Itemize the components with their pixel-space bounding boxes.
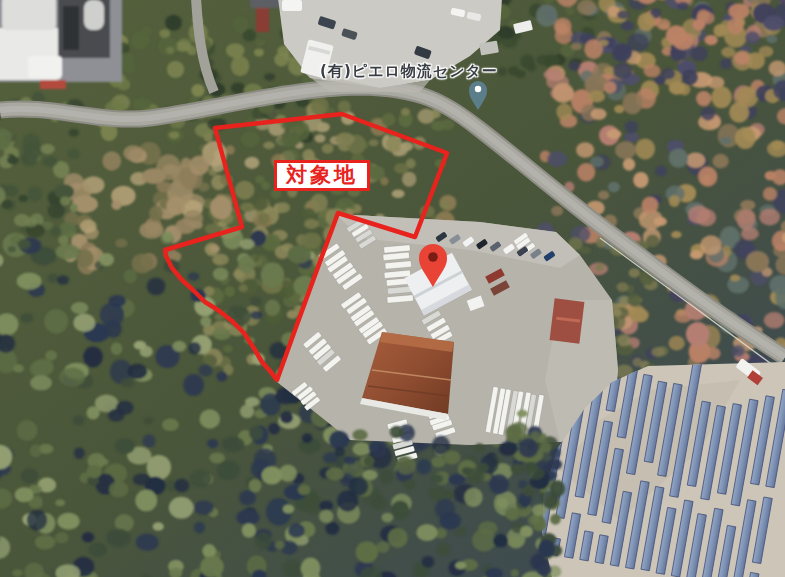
satellite-map-canvas[interactable]: (有)ピエロ物流センター 対象地	[0, 0, 785, 577]
satellite-imagery	[0, 0, 785, 577]
site-label: 対象地	[274, 160, 370, 191]
poi-label[interactable]: (有)ピエロ物流センター	[309, 62, 509, 81]
